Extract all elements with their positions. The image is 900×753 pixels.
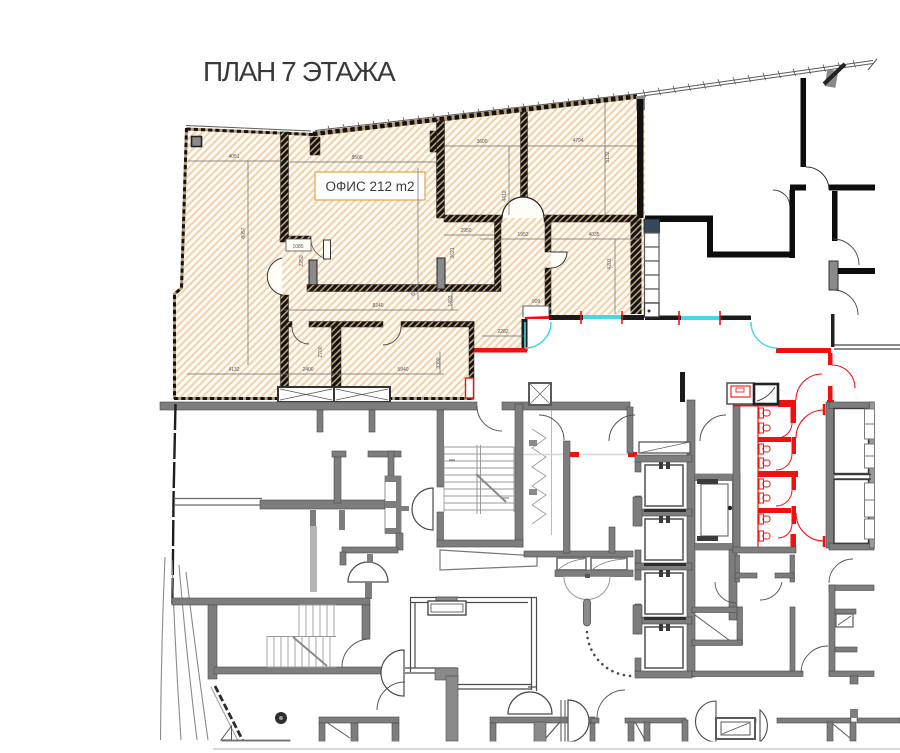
svg-text:2400: 2400 <box>302 367 313 373</box>
svg-text:4203: 4203 <box>607 258 613 269</box>
svg-text:8057: 8057 <box>241 227 247 238</box>
svg-text:3621: 3621 <box>450 247 456 258</box>
svg-text:2700: 2700 <box>318 346 324 357</box>
svg-text:1952: 1952 <box>517 232 528 238</box>
svg-text:ОФИС 212 m2: ОФИС 212 m2 <box>326 179 415 194</box>
svg-text:4794: 4794 <box>572 138 583 144</box>
svg-text:4051: 4051 <box>228 154 239 160</box>
svg-text:ПЛАН 7 ЭТАЖА: ПЛАН 7 ЭТАЖА <box>203 56 396 87</box>
svg-text:1085: 1085 <box>292 244 303 250</box>
svg-text:2250: 2250 <box>299 255 305 266</box>
svg-text:2950: 2950 <box>460 228 471 234</box>
svg-text:5132: 5132 <box>605 151 611 162</box>
svg-text:6531: 6531 <box>411 284 417 295</box>
svg-text:5940: 5940 <box>397 367 408 373</box>
svg-text:1493: 1493 <box>448 295 454 306</box>
svg-text:3600: 3600 <box>476 139 487 145</box>
svg-text:4132: 4132 <box>228 367 239 373</box>
svg-text:4035: 4035 <box>588 232 599 238</box>
svg-text:2282: 2282 <box>497 329 508 335</box>
svg-text:8240: 8240 <box>372 303 383 309</box>
svg-text:3390: 3390 <box>436 357 442 368</box>
svg-text:4412: 4412 <box>502 190 508 201</box>
svg-text:8500: 8500 <box>351 155 362 161</box>
svg-text:909: 909 <box>532 299 541 305</box>
